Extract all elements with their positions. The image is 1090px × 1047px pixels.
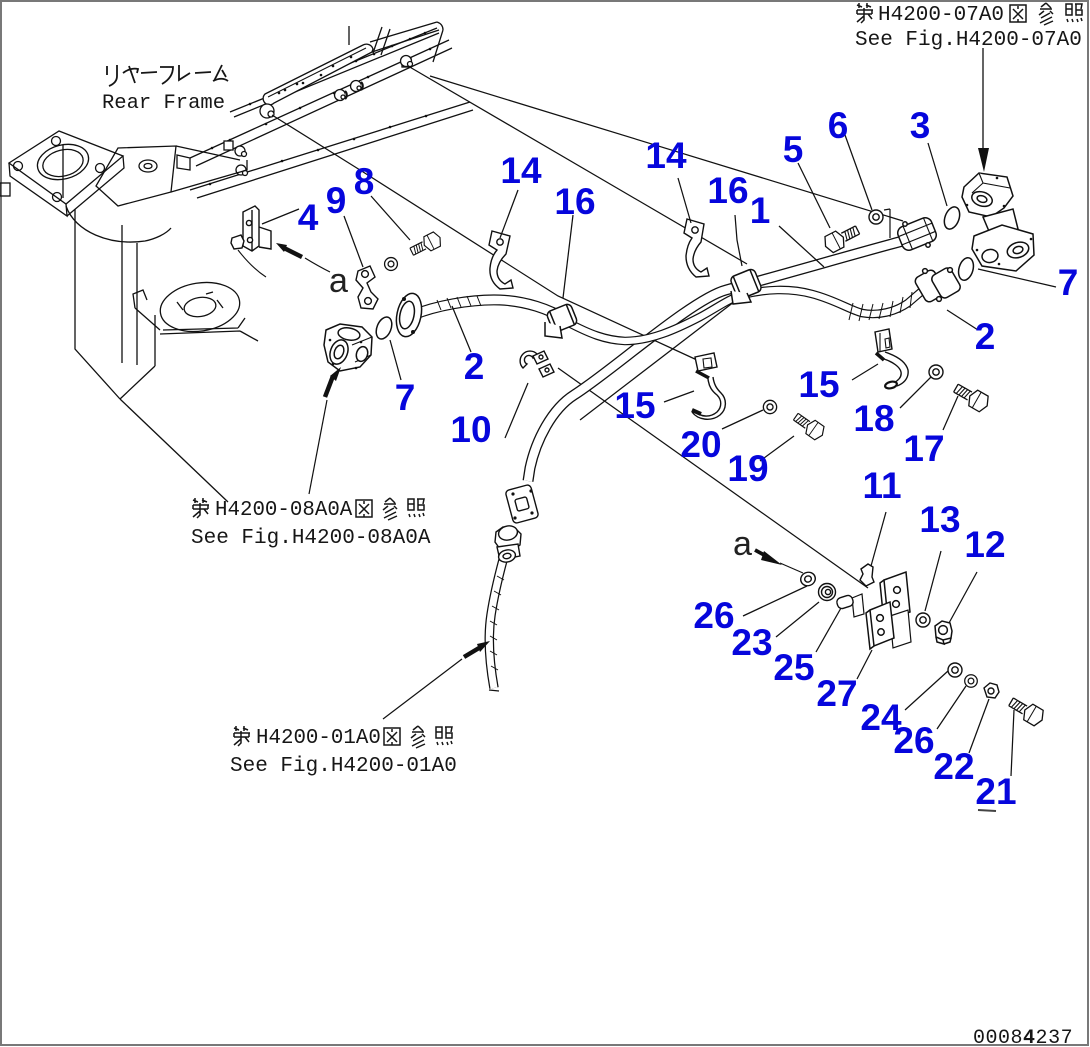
svg-text:H4200-01A0: H4200-01A0 [256, 727, 381, 750]
svg-text:2: 2 [464, 346, 485, 387]
svg-text:16: 16 [707, 170, 748, 211]
svg-text:15: 15 [798, 364, 839, 405]
svg-text:21: 21 [975, 771, 1016, 812]
svg-text:00084237: 00084237 [973, 1027, 1073, 1047]
svg-text:19: 19 [727, 448, 768, 489]
svg-text:a: a [733, 525, 752, 563]
svg-text:22: 22 [933, 746, 974, 787]
svg-text:11: 11 [862, 465, 901, 506]
svg-text:See Fig.H4200-01A0: See Fig.H4200-01A0 [230, 755, 457, 778]
svg-text:14: 14 [645, 135, 687, 176]
svg-text:23: 23 [731, 622, 772, 663]
svg-text:Rear Frame: Rear Frame [102, 92, 225, 115]
svg-text:14: 14 [500, 150, 542, 191]
svg-text:12: 12 [964, 524, 1005, 565]
svg-text:4: 4 [298, 197, 319, 238]
svg-text:8: 8 [354, 161, 375, 202]
svg-text:3: 3 [910, 105, 931, 146]
svg-text:13: 13 [919, 499, 960, 540]
svg-text:2: 2 [975, 316, 996, 357]
svg-text:26: 26 [693, 595, 734, 636]
svg-text:See Fig.H4200-07A0: See Fig.H4200-07A0 [855, 29, 1082, 52]
svg-text:18: 18 [853, 398, 894, 439]
svg-text:6: 6 [828, 105, 849, 146]
svg-text:7: 7 [1058, 262, 1079, 303]
svg-text:20: 20 [680, 424, 721, 465]
svg-text:16: 16 [554, 181, 595, 222]
svg-text:7: 7 [395, 377, 416, 418]
svg-text:5: 5 [783, 129, 804, 170]
svg-text:H4200-07A0: H4200-07A0 [878, 4, 1004, 27]
svg-text:25: 25 [773, 647, 814, 688]
svg-text:H4200-08A0A: H4200-08A0A [215, 499, 353, 522]
svg-text:15: 15 [614, 385, 655, 426]
svg-text:a: a [329, 262, 348, 300]
svg-text:10: 10 [450, 409, 491, 450]
svg-text:27: 27 [816, 673, 857, 714]
svg-text:1: 1 [750, 190, 771, 231]
svg-text:9: 9 [326, 180, 347, 221]
svg-text:17: 17 [903, 428, 944, 469]
svg-text:26: 26 [893, 720, 934, 761]
svg-text:See Fig.H4200-08A0A: See Fig.H4200-08A0A [191, 527, 431, 550]
